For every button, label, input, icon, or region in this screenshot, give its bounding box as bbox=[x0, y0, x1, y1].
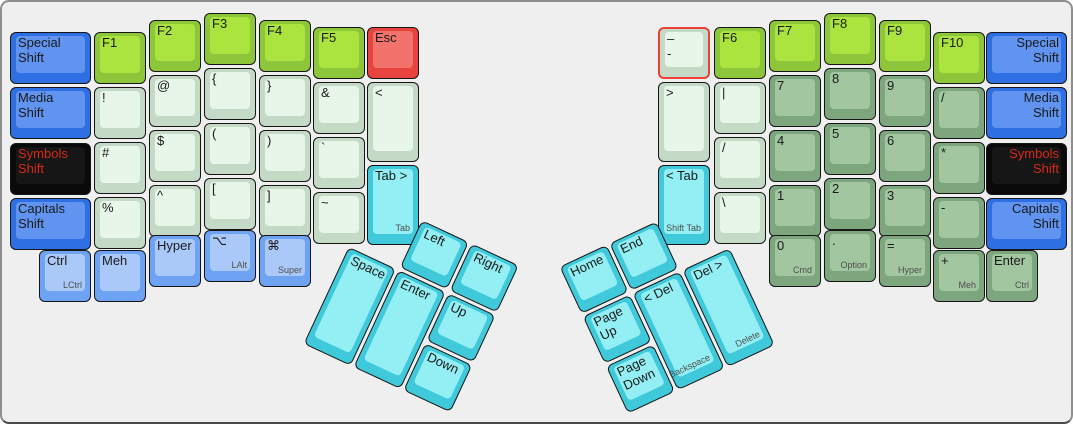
keycap-top bbox=[155, 189, 195, 226]
keycap-top bbox=[210, 127, 250, 164]
keycap-top bbox=[590, 301, 642, 351]
keycap-top bbox=[210, 234, 250, 271]
keycap-top bbox=[830, 17, 870, 54]
key-f10[interactable]: F10 bbox=[933, 32, 985, 84]
key-f7[interactable]: F7 bbox=[769, 20, 821, 72]
keycap-top bbox=[45, 254, 85, 291]
keycap-top bbox=[265, 239, 305, 276]
keycap-top bbox=[413, 349, 465, 399]
keycap-top bbox=[664, 86, 704, 151]
keycap-top bbox=[885, 134, 925, 171]
key-less-than[interactable]: < bbox=[367, 82, 419, 162]
keycap-top bbox=[939, 36, 979, 73]
key-paren-open[interactable]: ( bbox=[204, 123, 256, 175]
keycap-top bbox=[210, 72, 250, 109]
keycap-top bbox=[155, 239, 195, 276]
keycap-top bbox=[830, 72, 870, 109]
key-num-slash[interactable]: / bbox=[933, 87, 985, 139]
keycap-top bbox=[775, 239, 815, 276]
key-f1[interactable]: F1 bbox=[94, 32, 146, 84]
key-slash[interactable]: / bbox=[714, 137, 766, 189]
key-backtick[interactable]: ` bbox=[313, 137, 365, 189]
key-hyper[interactable]: Hyper bbox=[149, 235, 201, 287]
key-capitals-shift-left[interactable]: CapitalsShift bbox=[10, 198, 91, 250]
key-hash[interactable]: # bbox=[94, 142, 146, 194]
key-num-5[interactable]: 5 bbox=[824, 123, 876, 175]
key-f6[interactable]: F6 bbox=[714, 27, 766, 79]
keycap-top bbox=[885, 24, 925, 61]
key-caret[interactable]: ^ bbox=[149, 185, 201, 237]
keycap-top bbox=[885, 189, 925, 226]
keycap-top bbox=[616, 228, 668, 278]
keycap-top bbox=[265, 24, 305, 61]
key-special-shift-left[interactable]: SpecialShift bbox=[10, 32, 91, 84]
key-plus-meh[interactable]: +Meh bbox=[933, 250, 985, 302]
keycap-top bbox=[939, 91, 979, 128]
key-f3[interactable]: F3 bbox=[204, 13, 256, 65]
key-capitals-shift-right[interactable]: CapitalsShift bbox=[986, 198, 1067, 250]
keycap-top bbox=[373, 31, 413, 68]
keycap-top bbox=[830, 127, 870, 164]
keycap-top bbox=[373, 86, 413, 151]
key-pipe[interactable]: | bbox=[714, 82, 766, 134]
keycap-top bbox=[100, 201, 140, 238]
keycap-top bbox=[437, 299, 489, 349]
key-brace-open[interactable]: { bbox=[204, 68, 256, 120]
key-num-minus[interactable]: - bbox=[933, 197, 985, 249]
keycap-top bbox=[16, 202, 85, 239]
key-media-shift-right[interactable]: MediaShift bbox=[986, 87, 1067, 139]
keycap-top bbox=[100, 146, 140, 183]
keycap-top bbox=[992, 36, 1061, 73]
key-num-6[interactable]: 6 bbox=[879, 130, 931, 182]
key-num-1[interactable]: 1 bbox=[769, 185, 821, 237]
key-meh[interactable]: Meh bbox=[94, 250, 146, 302]
key-lalt[interactable]: ⌥LAlt bbox=[204, 230, 256, 282]
key-f4[interactable]: F4 bbox=[259, 20, 311, 72]
keycap-top bbox=[319, 141, 359, 178]
key-f8[interactable]: F8 bbox=[824, 13, 876, 65]
keycap-top bbox=[265, 134, 305, 171]
keycap-top bbox=[720, 141, 760, 178]
keycap-top bbox=[319, 86, 359, 123]
keycap-top bbox=[16, 91, 85, 128]
keyboard-canvas: SpecialShiftMediaShiftSymbolsShiftCapita… bbox=[0, 0, 1073, 424]
key-num-9[interactable]: 9 bbox=[879, 75, 931, 127]
key-special-shift-right[interactable]: SpecialShift bbox=[986, 32, 1067, 84]
keycap-top bbox=[885, 79, 925, 116]
keycap-top bbox=[665, 32, 703, 67]
key-dash[interactable]: –- bbox=[658, 27, 710, 79]
keycap-top bbox=[830, 182, 870, 219]
keycap-top bbox=[567, 251, 619, 301]
key-f9[interactable]: F9 bbox=[879, 20, 931, 72]
keycap-top bbox=[265, 189, 305, 226]
key-super[interactable]: ⌘Super bbox=[259, 235, 311, 287]
key-num-3[interactable]: 3 bbox=[879, 185, 931, 237]
key-num-2[interactable]: 2 bbox=[824, 178, 876, 230]
key-dollar[interactable]: $ bbox=[149, 130, 201, 182]
key-percent[interactable]: % bbox=[94, 197, 146, 249]
key-symbols-shift-right[interactable]: SymbolsShift bbox=[986, 143, 1067, 195]
keycap-top bbox=[720, 86, 760, 123]
keycap-top bbox=[720, 31, 760, 68]
keycap-top bbox=[992, 254, 1032, 291]
keycap-top bbox=[155, 134, 195, 171]
keycap-top bbox=[319, 31, 359, 68]
keycap-top bbox=[939, 201, 979, 238]
key-dot-option[interactable]: .Option bbox=[824, 230, 876, 282]
key-num-4[interactable]: 4 bbox=[769, 130, 821, 182]
key-paren-close[interactable]: ) bbox=[259, 130, 311, 182]
key-at-sign[interactable]: @ bbox=[149, 75, 201, 127]
keycap-top bbox=[16, 147, 85, 184]
keycap-top bbox=[720, 196, 760, 233]
keycap-top bbox=[410, 226, 462, 276]
key-symbols-shift-left[interactable]: SymbolsShift bbox=[10, 143, 91, 195]
key-f5[interactable]: F5 bbox=[313, 27, 365, 79]
keycap-top bbox=[775, 189, 815, 226]
keycap-top bbox=[775, 24, 815, 61]
key-num-8[interactable]: 8 bbox=[824, 68, 876, 120]
keycap-top bbox=[155, 24, 195, 61]
key-media-shift-left[interactable]: MediaShift bbox=[10, 87, 91, 139]
key-lctrl[interactable]: CtrlLCtrl bbox=[39, 250, 91, 302]
keycap-top bbox=[210, 182, 250, 219]
keycap-top bbox=[775, 79, 815, 116]
keycap-top bbox=[210, 17, 250, 54]
key-ampersand[interactable]: & bbox=[313, 82, 365, 134]
key-brace-close[interactable]: } bbox=[259, 75, 311, 127]
key-exclamation[interactable]: ! bbox=[94, 87, 146, 139]
keycap-top bbox=[939, 146, 979, 183]
keycap-top bbox=[775, 134, 815, 171]
keycap-top bbox=[100, 254, 140, 291]
keycap-top bbox=[885, 239, 925, 276]
keycap-top bbox=[992, 202, 1061, 239]
key-esc[interactable]: Esc bbox=[367, 27, 419, 79]
keycap-top bbox=[830, 234, 870, 271]
key-enter-ctrl[interactable]: EnterCtrl bbox=[986, 250, 1038, 302]
keycap-top bbox=[16, 36, 85, 73]
keycap-top bbox=[265, 79, 305, 116]
keycap-top bbox=[939, 254, 979, 291]
key-f2[interactable]: F2 bbox=[149, 20, 201, 72]
key-greater-than[interactable]: > bbox=[658, 82, 710, 162]
key-num-asterisk[interactable]: * bbox=[933, 142, 985, 194]
key-num-0-cmd[interactable]: 0Cmd bbox=[769, 235, 821, 287]
key-bracket-close[interactable]: ] bbox=[259, 185, 311, 237]
keycap-top bbox=[319, 196, 359, 233]
keycap-top bbox=[155, 79, 195, 116]
keycap-top bbox=[100, 36, 140, 73]
key-num-7[interactable]: 7 bbox=[769, 75, 821, 127]
keycap-top bbox=[460, 250, 512, 300]
keycap-top bbox=[992, 147, 1061, 184]
key-equals-hyper[interactable]: =Hyper bbox=[879, 235, 931, 287]
keycap-top bbox=[992, 91, 1061, 128]
key-bracket-open[interactable]: [ bbox=[204, 178, 256, 230]
keycap-top bbox=[613, 351, 665, 401]
keycap-top bbox=[100, 91, 140, 128]
